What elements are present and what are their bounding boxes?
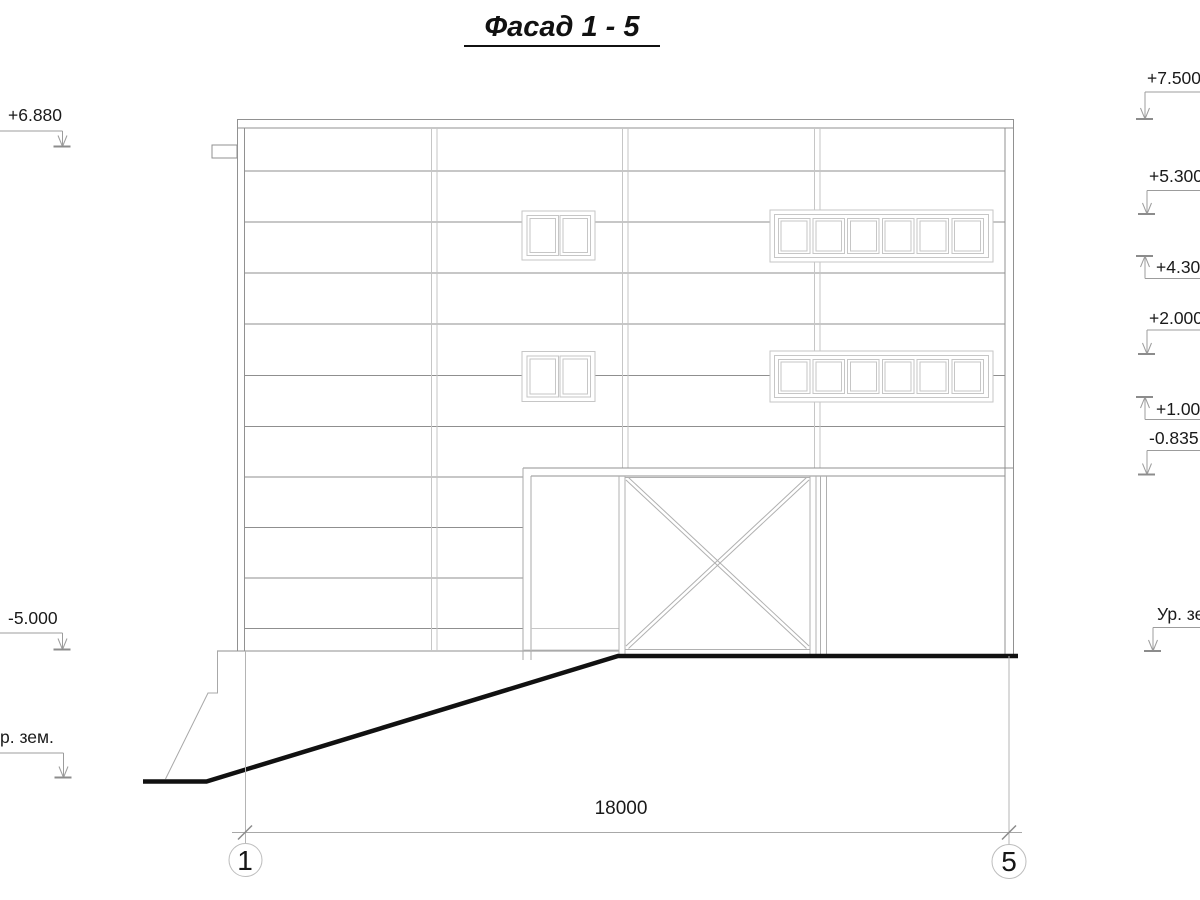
elevation-arrowhead: [1145, 397, 1150, 408]
drawing-title: Фасад 1 - 5: [464, 10, 660, 47]
window-pane-inner: [851, 221, 877, 251]
foundation-outline: [166, 651, 218, 779]
elevation-arrowhead: [1143, 203, 1148, 214]
elevation-label-ground-right: Ур. зе: [1157, 604, 1200, 624]
elevation-arrowhead: [1141, 397, 1146, 408]
elevation-arrowhead: [1149, 640, 1154, 651]
elevation-arrowhead: [1145, 256, 1150, 267]
elevation-arrowhead: [1147, 464, 1152, 475]
window-pane-inner: [781, 221, 807, 251]
facade-linework: [0, 0, 1200, 900]
elevation-label-minus5000: -5.000: [8, 608, 58, 628]
elevation-label-minus0835: -0.835: [1149, 428, 1199, 448]
elevation-arrowhead: [1141, 256, 1146, 267]
window-pane-inner: [563, 359, 588, 394]
window-pane-inner: [563, 219, 588, 253]
ground-line: [143, 656, 1018, 782]
window-pane-inner: [955, 221, 981, 251]
elevation-label-5300: +5.300: [1149, 166, 1200, 186]
window-pane-inner: [920, 362, 946, 391]
window-pane-inner: [885, 221, 911, 251]
window-pane-inner: [781, 362, 807, 391]
elevation-arrowhead: [63, 136, 68, 147]
elevation-arrowhead: [1153, 640, 1158, 651]
window-pane-inner: [530, 359, 556, 394]
axis-bubble-1-label: 1: [237, 847, 253, 875]
elevation-label-ground-left: р. зем.: [0, 727, 54, 747]
facade-drawing-canvas: Фасад 1 - 5 +6.880 -5.000 р. зем. +7.500…: [0, 0, 1200, 900]
xbrace-diagonal: [629, 480, 810, 649]
window-pane-inner: [851, 362, 877, 391]
elevation-label-7500: +7.500: [1147, 68, 1200, 88]
elevation-arrowhead: [58, 136, 63, 147]
elevation-label-4300: +4.300: [1156, 257, 1200, 277]
window-pane-inner: [530, 219, 556, 253]
scupper: [212, 145, 237, 158]
axis-bubble-5-label: 5: [1001, 848, 1017, 876]
elevation-arrowhead: [1147, 203, 1152, 214]
elevation-label-2000: +2.000: [1149, 308, 1200, 328]
dimension-label: 18000: [560, 799, 682, 819]
elevation-arrowhead: [1145, 108, 1150, 119]
window-pane-inner: [955, 362, 981, 391]
window-pane-inner: [885, 362, 911, 391]
elevation-label-1000: +1.000: [1156, 399, 1200, 419]
window-pane-inner: [920, 221, 946, 251]
xbrace-diagonal: [626, 478, 807, 647]
window-pane-inner: [816, 362, 842, 391]
elevation-arrowhead: [64, 767, 69, 778]
xbrace-diagonal: [626, 480, 807, 649]
elevation-arrowhead: [1143, 464, 1148, 475]
window-pane-inner: [816, 221, 842, 251]
elevation-label-6880: +6.880: [8, 105, 62, 125]
xbrace-diagonal: [629, 478, 810, 647]
elevation-arrowhead: [59, 767, 64, 778]
elevation-arrowhead: [58, 639, 63, 650]
elevation-arrowhead: [1143, 343, 1148, 354]
elevation-arrowhead: [1141, 108, 1146, 119]
elevation-arrowhead: [1147, 343, 1152, 354]
elevation-arrowhead: [63, 639, 68, 650]
